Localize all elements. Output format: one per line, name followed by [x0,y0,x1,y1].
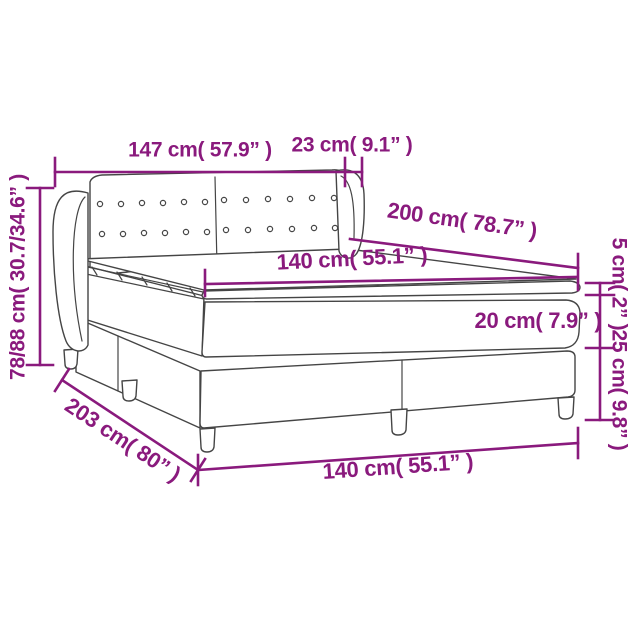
bed-leg-front-right [558,397,574,419]
bed-dimension-drawing: 147 cm( 57.9” ) 23 cm( 9.1” ) 78/88 cm( … [0,0,640,640]
base-width-label: 140 cm( 55.1” ) [322,449,474,484]
base-front-face [200,351,575,428]
headboard-left-wing [53,191,88,351]
mattress-height-label: 20 cm( 7.9” ) [475,308,602,333]
bed-leg-front-middle [391,409,407,435]
base-height-label: 25 cm( 9.8” ) [607,330,630,451]
dimension-diagram: 147 cm( 57.9” ) 23 cm( 9.1” ) 78/88 cm( … [0,0,640,640]
bed-leg-side [122,380,137,401]
headboard-width-label: 147 cm( 57.9” ) [128,139,272,162]
topper-height-label: 5 cm( 2” ) [607,238,630,331]
wing-depth-label: 23 cm( 9.1” ) [292,134,413,157]
dim-total-height: 78/88 cm( 30.7/34.6” ) [7,174,53,380]
total-height-label: 78/88 cm( 30.7/34.6” ) [7,174,30,380]
bed-leg-back-left [64,349,78,369]
dim-base-width: 140 cm( 55.1” ) [198,428,578,485]
bed-leg-front-left [200,428,215,452]
bed-length-label: 200 cm( 78.7” ) [386,197,539,243]
